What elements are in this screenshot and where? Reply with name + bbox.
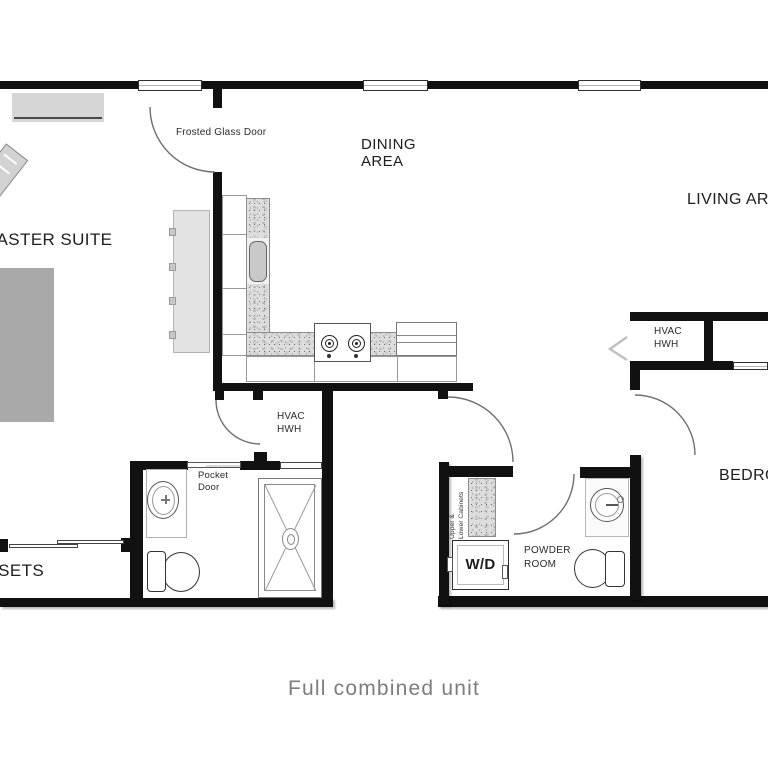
- label-pocket-door: Pocket Door: [198, 470, 228, 494]
- wd-hinge: [447, 557, 453, 572]
- wall: [630, 361, 640, 390]
- island-bracket: [169, 263, 176, 271]
- wall: [213, 89, 222, 108]
- burner-icon: [321, 335, 338, 352]
- powder-toilet-tank: [605, 551, 625, 587]
- powder-sink: [590, 488, 624, 522]
- label-hvac-hall: HVAC HWH: [277, 411, 305, 436]
- door-swing-arc: [448, 397, 513, 462]
- wall: [630, 361, 733, 370]
- wall: [254, 452, 267, 462]
- wall: [322, 383, 333, 607]
- kitchen-cabinets: [222, 195, 247, 356]
- island-bracket: [169, 331, 176, 339]
- island-bracket: [169, 297, 176, 305]
- window: [733, 362, 768, 370]
- dresser: [12, 93, 104, 122]
- door-swing-arc: [216, 400, 260, 444]
- window: [138, 80, 202, 91]
- bathroom-sink: [147, 481, 179, 519]
- island-bracket: [169, 228, 176, 236]
- wall: [240, 461, 280, 470]
- bifold-door-chevron-icon: [610, 337, 627, 360]
- wall: [0, 539, 8, 552]
- plan-caption: Full combined unit: [0, 677, 768, 701]
- pocket-door: [187, 462, 241, 468]
- kitchen-island: [173, 210, 210, 353]
- shower-glass-panel: [280, 462, 322, 469]
- wall: [630, 455, 641, 600]
- label-frosted-glass-door: Frosted Glass Door: [176, 127, 266, 140]
- room-label-closets: CLOSETS: [0, 561, 44, 581]
- wall: [213, 172, 222, 391]
- stove: [314, 323, 371, 362]
- shower-drain: [282, 528, 299, 550]
- wall: [0, 598, 333, 607]
- wall-art: [0, 143, 28, 204]
- door-swing-arc: [150, 107, 215, 172]
- wall: [438, 596, 768, 607]
- wall: [130, 461, 143, 607]
- stove-knob: [327, 354, 331, 358]
- kitchen-sink: [249, 241, 267, 282]
- powder-cabinets: [468, 478, 496, 537]
- label-upper-lower-cabinets: Upper & Lower Cabinets: [449, 477, 467, 539]
- stove-knob: [354, 354, 358, 358]
- wall: [439, 466, 513, 477]
- floor-plan: W/D MASTER SUITE DINING AREA LIVING AREA…: [0, 0, 768, 768]
- wall: [438, 391, 448, 399]
- toilet-tank: [147, 551, 166, 592]
- window: [363, 80, 428, 91]
- window: [578, 80, 641, 91]
- room-label-master-suite: MASTER SUITE: [0, 230, 112, 250]
- wall: [439, 462, 449, 605]
- label-powder-room: POWDER ROOM: [524, 544, 571, 571]
- door-swing-arc: [514, 474, 574, 534]
- wall: [213, 383, 473, 391]
- burner-icon: [348, 335, 365, 352]
- room-label-dining-area: DINING AREA: [361, 136, 416, 171]
- door-swing-arc: [635, 395, 695, 455]
- wall: [215, 391, 224, 400]
- wall: [253, 391, 263, 400]
- bed: [0, 268, 54, 422]
- room-label-bedroom: BEDROOM: [719, 467, 768, 485]
- washer-dryer: W/D: [452, 540, 509, 590]
- room-label-living-area: LIVING AREA: [687, 191, 768, 209]
- wall: [630, 312, 768, 321]
- closet-sliding-door: [9, 544, 78, 549]
- refrigerator: [396, 322, 457, 356]
- toilet: [162, 552, 200, 592]
- wd-hinge: [502, 565, 508, 579]
- label-hvac-living: HVAC HWH: [654, 326, 682, 351]
